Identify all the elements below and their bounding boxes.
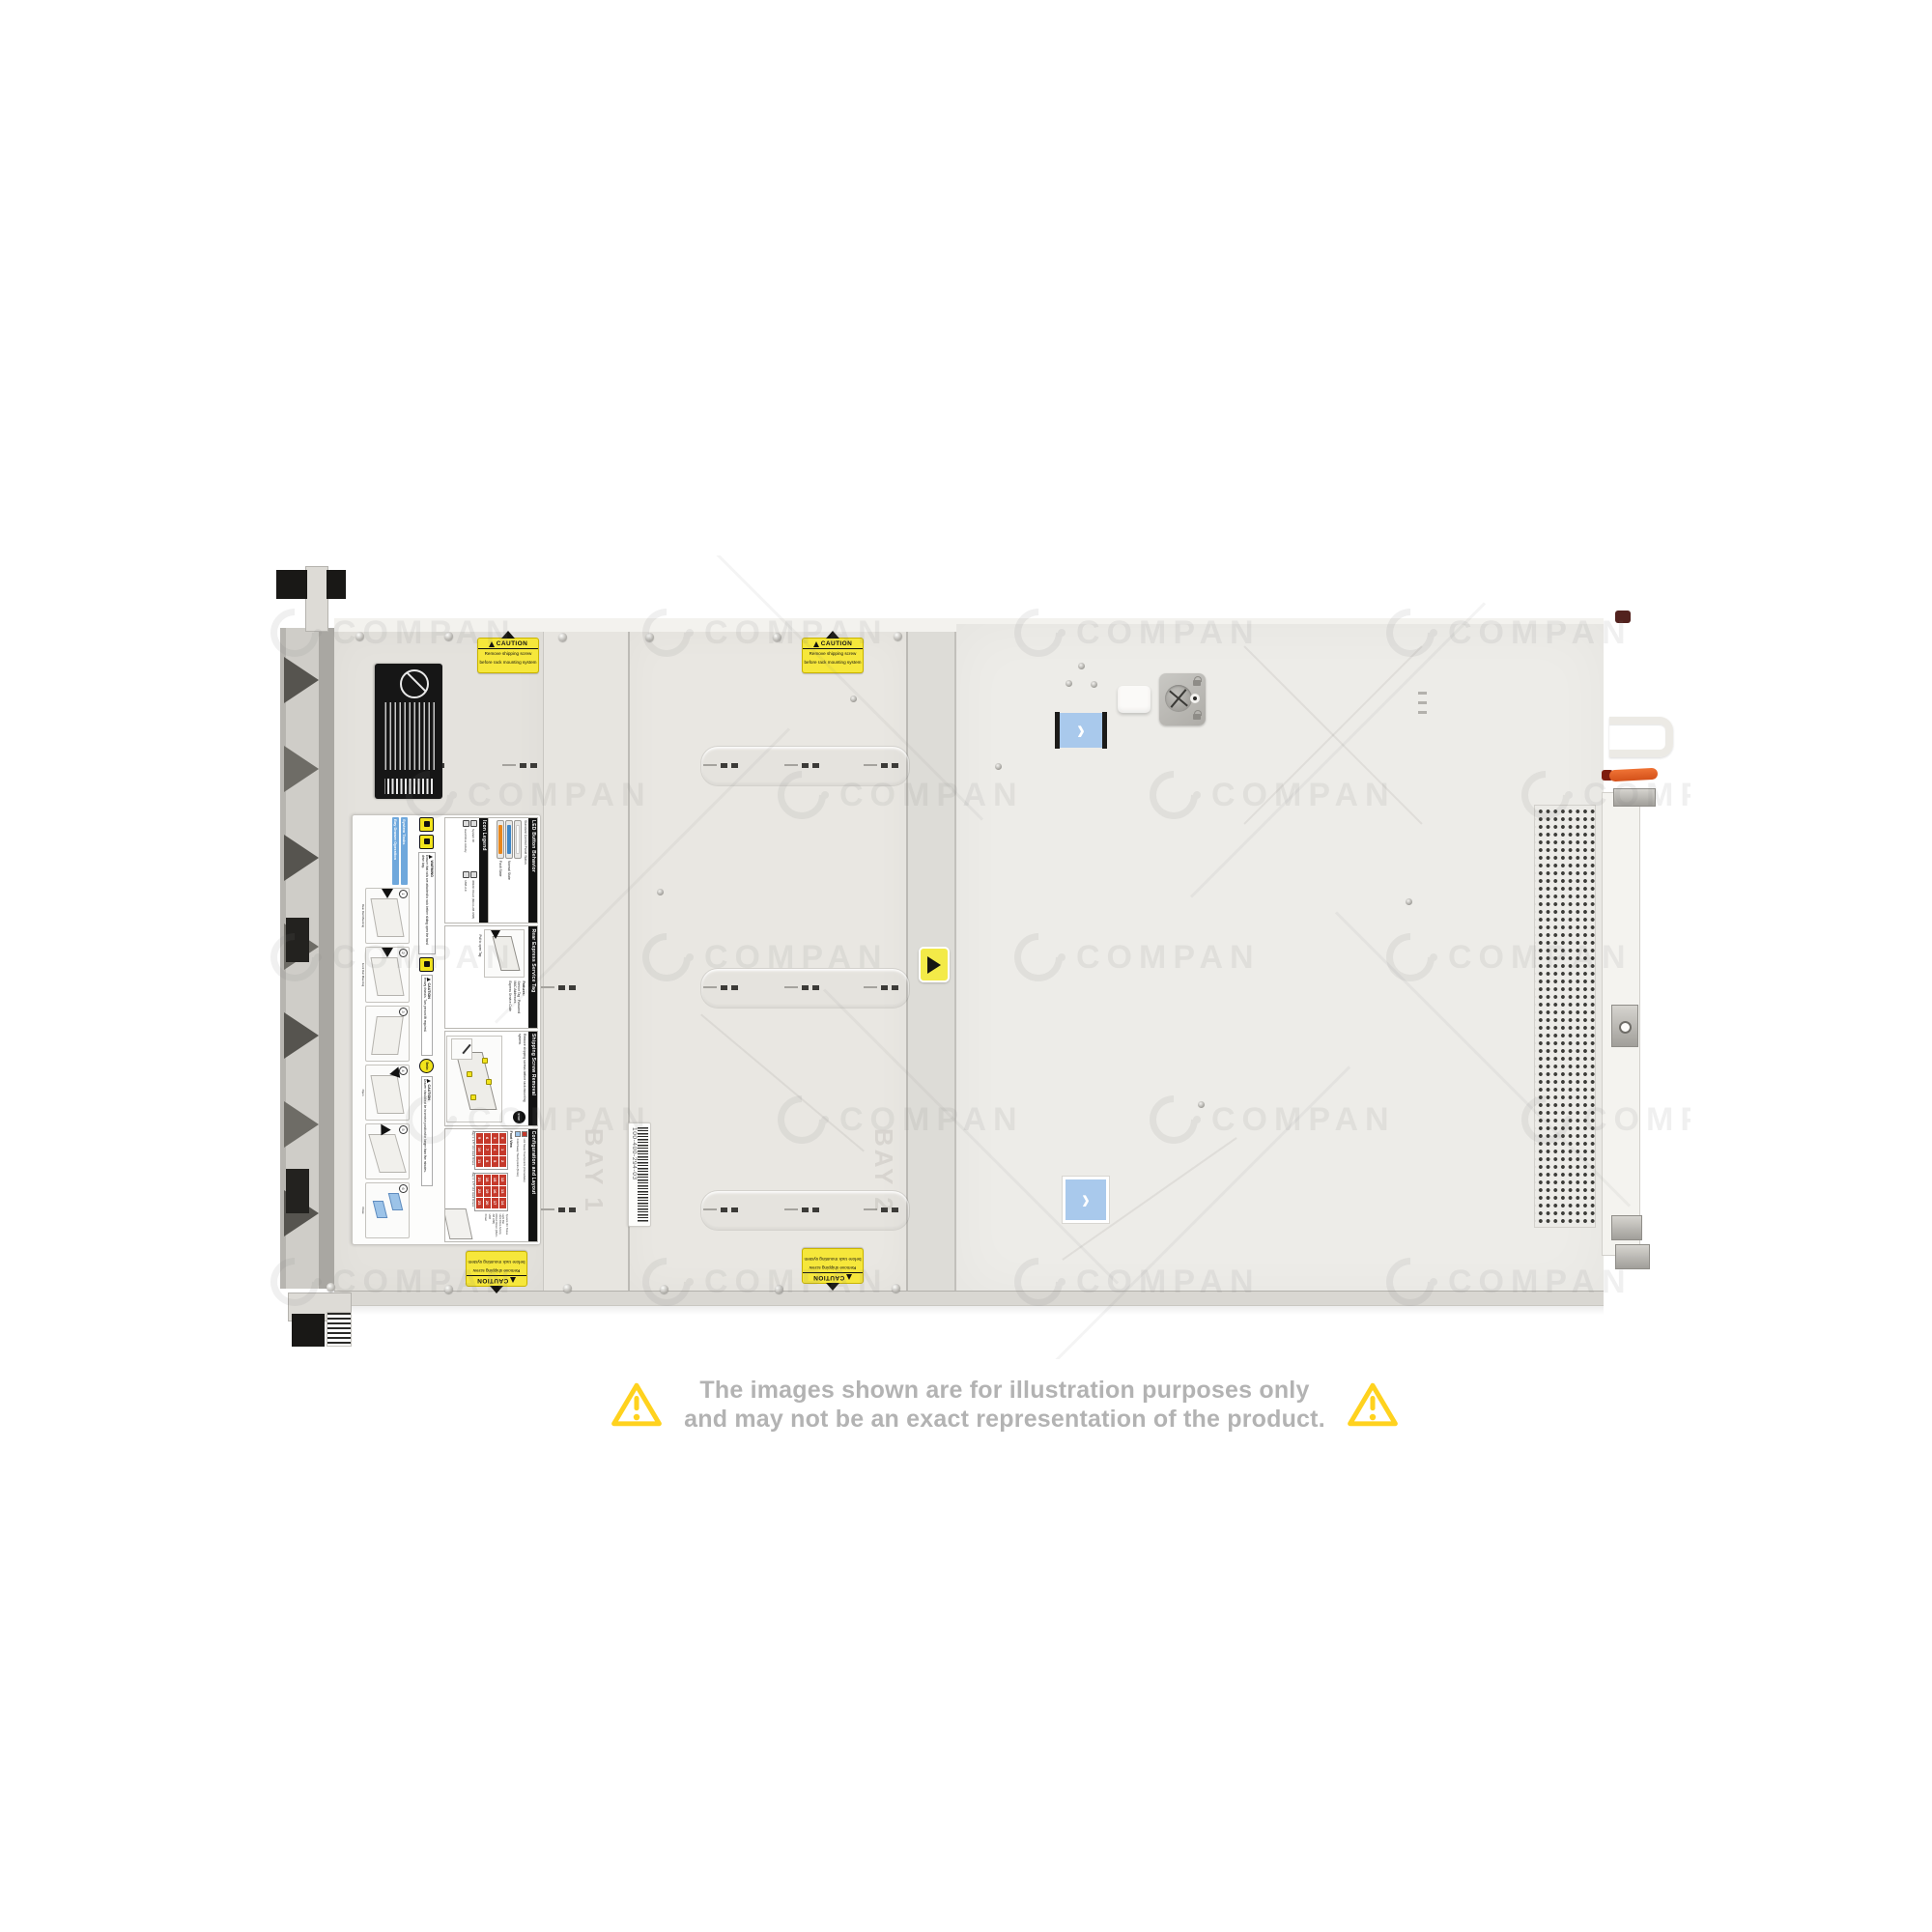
rack-ear-top-bracket — [305, 566, 328, 632]
warning-triangle-icon — [611, 1380, 663, 1429]
drive-number: 15 — [492, 1175, 498, 1185]
vent-dash-line — [703, 1208, 717, 1210]
section-title: Shipping Screw Removal — [528, 1032, 537, 1125]
tasks-header: Bay Drawer Operation — [392, 817, 399, 885]
blue-button-bracket-right — [1102, 712, 1107, 749]
stop-icon: STOP — [513, 1111, 526, 1123]
drive-number: 13 — [499, 1186, 506, 1197]
hot-swap-swatch — [522, 1131, 527, 1137]
vent-dash-line — [541, 1208, 554, 1210]
section-title: Icon Legend — [479, 818, 488, 923]
drive-number: 7 — [484, 1145, 491, 1155]
chevron-right-icon: › — [1082, 1185, 1090, 1214]
regulatory-fine-print — [383, 702, 435, 770]
rail-clip-top — [1613, 788, 1656, 807]
vent-dash-pair — [881, 985, 898, 990]
blue-button-bracket-left — [1055, 712, 1060, 749]
task-step: 6 — [365, 1182, 410, 1238]
cold-swap-swatch — [515, 1131, 521, 1137]
slide-release-button-bottom[interactable]: › — [1063, 1177, 1109, 1223]
phillips-screw — [894, 632, 902, 640]
phillips-screw — [563, 1284, 572, 1293]
led-bar-normal — [505, 820, 513, 859]
drive-latch-wedge — [284, 1101, 319, 1148]
task-step: 1 — [365, 888, 410, 944]
drive-latch-wedge — [284, 746, 319, 792]
drive-number: 4 — [492, 1145, 498, 1155]
service-label-sections: LED Button Behavior Standard Control Pan… — [444, 817, 538, 1242]
five-minute-icon: 5min — [420, 1059, 435, 1073]
drive-number: 1 — [499, 1145, 506, 1155]
vent-dash — [1418, 692, 1427, 695]
lock-icon — [1193, 714, 1201, 720]
phillips-screw — [775, 1285, 783, 1293]
vent-dash-line — [784, 1208, 798, 1210]
lid-lock-plate[interactable] — [1159, 673, 1206, 725]
vent-dash-line — [502, 764, 516, 766]
phillips-screw — [355, 632, 364, 640]
rivet — [850, 696, 857, 702]
product-photo-canvas: › › CAUTION Remove shipping screw before… — [0, 0, 1932, 1932]
drive-number: 10 — [476, 1145, 483, 1155]
main-lid-panel — [956, 624, 1604, 1298]
barcode-number: 100-400-294-03 — [631, 1127, 638, 1180]
drive-number: 9 — [476, 1133, 483, 1144]
drawer-isometric-sketch — [444, 1208, 472, 1239]
idrac-icon — [470, 871, 477, 878]
drawer-front-strip — [280, 628, 334, 1289]
unlock-icon — [1193, 680, 1201, 686]
rivet — [1065, 680, 1072, 687]
rail-clip-bottom-2 — [1615, 1244, 1650, 1269]
vent-dash-pair — [881, 763, 898, 768]
vent-dash-line — [541, 986, 554, 988]
drive-number: 6 — [484, 1133, 491, 1144]
vent-dash — [1418, 701, 1427, 704]
drive-latch-wedge — [284, 835, 319, 881]
vent-dash-pair — [721, 985, 738, 990]
lock-indicator-dot — [1190, 694, 1200, 703]
drive-number: 19 — [484, 1186, 491, 1197]
drive-number: 0 — [499, 1133, 506, 1144]
led-bar-off — [514, 820, 522, 859]
vent-dash-pair — [802, 763, 819, 768]
system-id-icon — [470, 820, 477, 827]
latch-hole — [1619, 1021, 1632, 1034]
warning-triangle-icon — [927, 956, 941, 974]
service-tag-sketch — [484, 929, 525, 978]
drive-number: 21 — [476, 1175, 483, 1185]
vent-dash-line — [864, 764, 877, 766]
vent-dash-pair — [558, 985, 576, 990]
drive-number: 12 — [499, 1175, 506, 1185]
drive-latch-wedge — [284, 1012, 319, 1059]
slide-release-button-top[interactable]: › — [1060, 713, 1102, 748]
configuration-section: Configuration and Layout Hot Swap Touchp… — [444, 1128, 538, 1242]
caution-label-top-left: CAUTION Remove shipping screw before rac… — [477, 638, 539, 673]
rivet — [657, 889, 664, 895]
drive-latch-slot — [286, 1169, 309, 1213]
disclaimer-text: The images shown are for illustration pu… — [684, 1376, 1325, 1434]
rail-latch[interactable] — [1611, 1005, 1638, 1047]
task-step: 3 — [365, 1006, 410, 1062]
drive-number: 20 — [484, 1198, 491, 1208]
vent-dash-pair — [721, 1207, 738, 1212]
drive-number: 18 — [484, 1175, 491, 1185]
task-step: 5 — [365, 1123, 410, 1179]
phillips-screw — [444, 632, 453, 640]
rack-ear-top-block — [327, 570, 346, 599]
tasks-header: System Tasks — [401, 817, 408, 885]
phillips-screw — [660, 1285, 668, 1293]
drive-number: 22 — [476, 1186, 483, 1197]
prohibition-icon — [400, 669, 429, 698]
vent-dash-line — [784, 764, 798, 766]
vent-dash-line — [703, 764, 717, 766]
embossed-bay2: BAY 2 — [866, 1128, 898, 1206]
lid-release-latch[interactable] — [1118, 686, 1151, 713]
bay2-drive-grid: 121314151617181920212223 — [474, 1173, 508, 1211]
shipping-screw-section: Shipping Screw Removal STOP Remove shipp… — [444, 1031, 538, 1126]
regulatory-barcode — [384, 779, 433, 794]
drive-number: 23 — [476, 1198, 483, 1208]
task-step: 2 — [365, 947, 410, 1003]
warning-triangle-icon — [846, 1275, 852, 1281]
lock-screw-icon[interactable] — [1165, 685, 1192, 712]
embossed-bay1: BAY 1 — [576, 1128, 609, 1206]
service-label-warnings: WARNINGEnsure that rails are attached to… — [412, 817, 442, 1242]
rack-ear-top — [276, 570, 307, 599]
drive-number: 3 — [492, 1133, 498, 1144]
orange-release-lever[interactable] — [1609, 768, 1659, 782]
rack-ear-bottom — [292, 1314, 325, 1347]
phillips-screw — [327, 1283, 335, 1292]
inventory-barcode-label: 100-400-294-03 — [630, 1122, 651, 1225]
warning-triangle-icon — [1347, 1380, 1399, 1429]
pinch-hazard-icon — [420, 957, 435, 972]
phillips-screw — [773, 633, 781, 641]
led-and-legend-section: LED Button Behavior Standard Control Pan… — [444, 817, 538, 923]
service-label: LED Button Behavior Standard Control Pan… — [354, 814, 541, 1243]
caution-label-bottom-left: CAUTION Remove shipping screw before rac… — [466, 1251, 527, 1287]
rivet — [1406, 898, 1412, 905]
rivet — [1198, 1101, 1205, 1108]
task-step: 4 — [365, 1065, 410, 1121]
vent-dash-pair — [802, 985, 819, 990]
vent-grid — [1534, 805, 1596, 1228]
regulatory-label — [375, 664, 442, 799]
vent-dash-pair — [520, 763, 537, 768]
hdd-activity-icon — [463, 820, 469, 827]
vent-dash-line — [864, 986, 877, 988]
pinch-warning-sticker — [919, 947, 950, 982]
chassis-shadow — [334, 1305, 1604, 1315]
rivet — [995, 763, 1002, 770]
service-tag-section: Rear Express Service Tag Features: Servi… — [444, 925, 538, 1029]
drive-number: 11 — [476, 1156, 483, 1167]
barcode — [638, 1127, 648, 1222]
drive-latch-wedge — [284, 657, 319, 703]
drive-number: 16 — [492, 1186, 498, 1197]
drive-number: 17 — [492, 1198, 498, 1208]
pinch-hazard-icon — [420, 817, 435, 832]
rack-ear-barcode-label — [327, 1312, 352, 1347]
vent-dash-line — [703, 986, 717, 988]
drive-number: 2 — [499, 1156, 506, 1167]
drive-latch-slot — [286, 918, 309, 962]
service-label-tasks: System Tasks Bay Drawer Operation 1 Rear… — [355, 817, 410, 1242]
warning-triangle-icon — [510, 1278, 516, 1284]
vent-dash-pair — [558, 1207, 576, 1212]
section-title: LED Button Behavior — [528, 818, 537, 923]
vent-dash-pair — [802, 1207, 819, 1212]
rivet — [1078, 663, 1085, 669]
warning-triangle-icon — [813, 641, 819, 647]
rivet — [1091, 681, 1097, 688]
drive-number: 14 — [499, 1198, 506, 1208]
corner-screw — [1615, 611, 1631, 623]
vent-dash-line — [784, 986, 798, 988]
drive-number: 5 — [492, 1156, 498, 1167]
section-title: Configuration and Layout — [528, 1129, 537, 1241]
disclaimer: The images shown are for illustration pu… — [599, 1376, 1410, 1434]
warning-triangle-icon — [489, 641, 495, 647]
shipping-screw-sketch — [446, 1036, 502, 1122]
drive-number: 8 — [484, 1156, 491, 1167]
usb-icon — [463, 871, 469, 878]
caution-label-bottom-middle: CAUTION Remove shipping screw before rac… — [802, 1248, 864, 1284]
vent-dash — [1418, 711, 1427, 714]
phillips-screw — [558, 633, 567, 641]
phillips-screw — [645, 633, 654, 641]
vent-dash-pair — [721, 763, 738, 768]
bay1-drive-grid: 01234567891011 — [474, 1131, 508, 1170]
chevron-right-icon: › — [1077, 716, 1085, 745]
chassis-bottom-edge — [334, 1291, 1604, 1306]
pull-ring-handle[interactable] — [1609, 717, 1673, 757]
caution-label-top-middle: CAUTION Remove shipping screw before rac… — [802, 638, 864, 673]
rail-clip-bottom-1 — [1611, 1215, 1642, 1240]
pinch-hazard-icon — [420, 835, 435, 849]
led-bar-fault — [497, 820, 504, 859]
phillips-screw — [444, 1285, 453, 1293]
section-title: Rear Express Service Tag — [528, 926, 537, 1028]
phillips-screw — [892, 1284, 900, 1293]
